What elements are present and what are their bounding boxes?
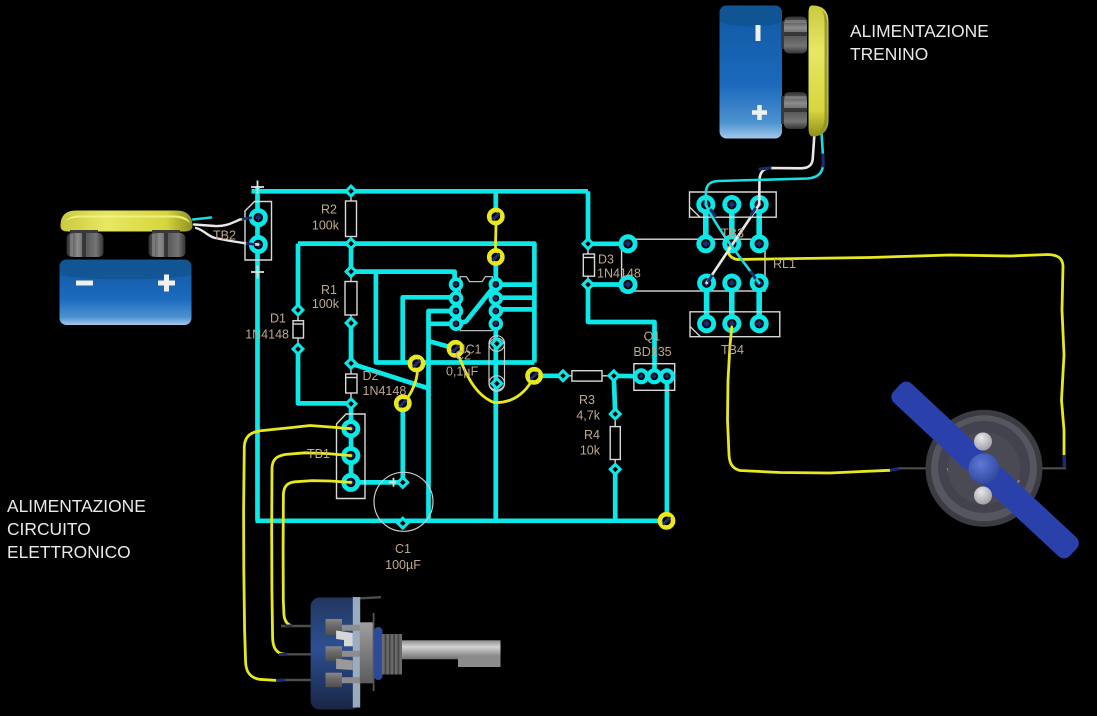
svg-text:D3: D3 xyxy=(598,253,614,267)
svg-text:TRENINO: TRENINO xyxy=(850,44,928,64)
svg-text:D1: D1 xyxy=(270,312,286,326)
svg-text:R2: R2 xyxy=(321,203,337,217)
svg-text:1N4148: 1N4148 xyxy=(597,267,641,281)
svg-text:1N4148: 1N4148 xyxy=(363,384,407,398)
svg-text:10k: 10k xyxy=(580,444,601,458)
svg-text:ALIMENTAZIONE: ALIMENTAZIONE xyxy=(7,496,146,516)
svg-text:CIRCUITO: CIRCUITO xyxy=(7,519,91,539)
svg-text:100k: 100k xyxy=(312,219,340,233)
svg-text:TB1: TB1 xyxy=(307,447,330,461)
svg-text:R3: R3 xyxy=(579,393,595,407)
svg-text:TB4: TB4 xyxy=(721,343,744,357)
svg-text:C1: C1 xyxy=(395,542,411,556)
svg-text:D2: D2 xyxy=(363,369,379,383)
svg-text:0,1µF: 0,1µF xyxy=(446,365,479,379)
svg-text:BD135: BD135 xyxy=(633,345,671,359)
svg-text:100µF: 100µF xyxy=(385,558,421,572)
svg-text:4,7k: 4,7k xyxy=(576,409,600,423)
svg-text:TB2: TB2 xyxy=(213,229,236,243)
svg-text:100k: 100k xyxy=(312,297,340,311)
svg-text:C2: C2 xyxy=(455,349,471,363)
svg-text:Q1: Q1 xyxy=(644,330,661,344)
svg-text:ELETTRONICO: ELETTRONICO xyxy=(7,542,131,562)
svg-text:R4: R4 xyxy=(584,428,600,442)
svg-text:1N4148: 1N4148 xyxy=(245,328,289,342)
svg-text:ALIMENTAZIONE: ALIMENTAZIONE xyxy=(850,21,989,41)
svg-text:R1: R1 xyxy=(321,283,337,297)
svg-text:RL1: RL1 xyxy=(773,257,796,271)
svg-text:TB3: TB3 xyxy=(721,227,744,241)
